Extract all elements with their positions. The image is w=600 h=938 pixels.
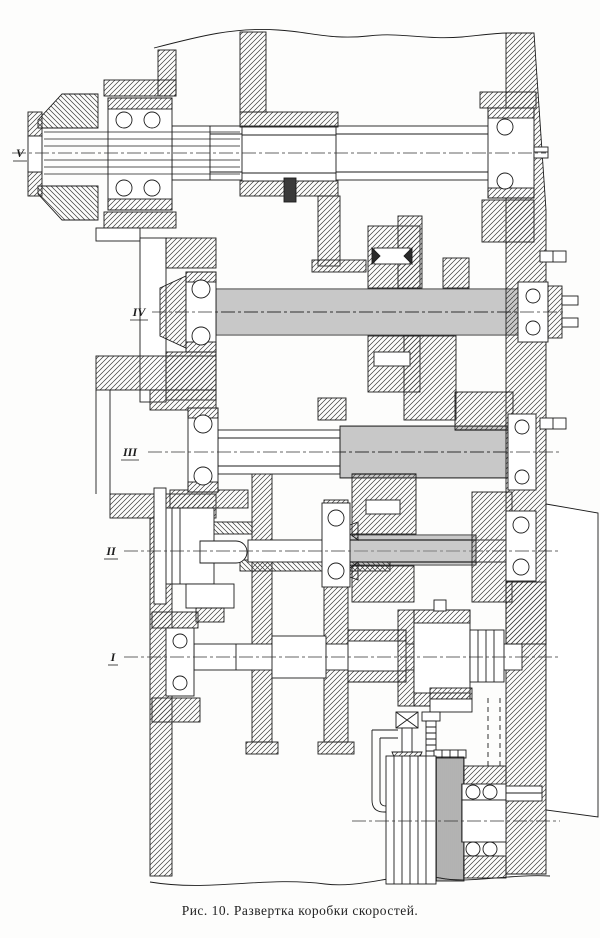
shaft-label-ii: II bbox=[105, 544, 117, 558]
shaft-label-i: I bbox=[110, 650, 117, 664]
figure-caption: Рис. 10. Развертка коробки скоростей. bbox=[0, 903, 600, 919]
shaft-label-v: V bbox=[16, 146, 25, 160]
gearbox-drawing: V IV III II I bbox=[0, 0, 600, 900]
shaft-label-iv: IV bbox=[132, 305, 147, 319]
centerlines bbox=[12, 153, 566, 821]
gearbox-sectional-drawing: V IV III II I bbox=[0, 0, 600, 900]
shaft-label-iii: III bbox=[122, 445, 138, 459]
figure-page: V IV III II I Рис. 10. Развертка коробки… bbox=[0, 0, 600, 938]
